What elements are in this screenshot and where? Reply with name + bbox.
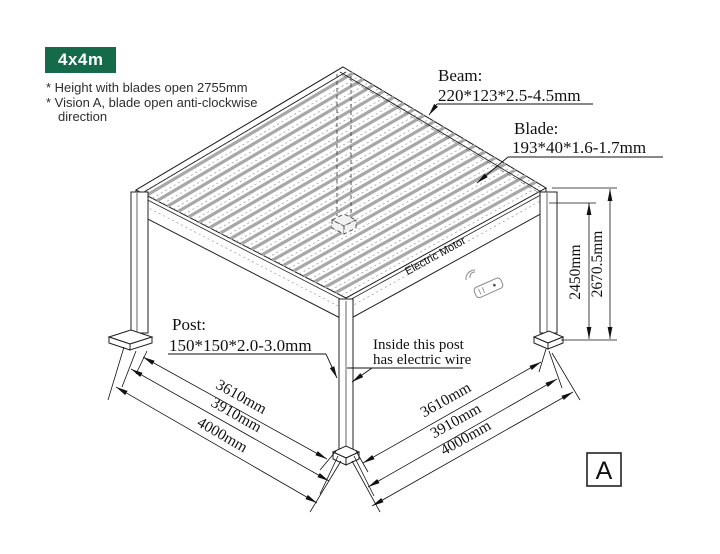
remote-control-icon <box>466 270 504 299</box>
notes: * Height with blades open 2755mm * Visio… <box>46 81 258 125</box>
front-post <box>333 299 359 465</box>
view-label: A <box>596 457 613 485</box>
size-badge: 4x4m <box>45 47 116 73</box>
right-post-base-plate <box>534 331 563 349</box>
beam-callout-title: Beam: <box>438 66 482 85</box>
note-height: * Height with blades open 2755mm <box>46 81 258 96</box>
note-vision: * Vision A, blade open anti-clockwise <box>46 96 258 111</box>
post-callout-spec: 150*150*2.0-3.0mm <box>169 336 312 355</box>
wire-note-line1: Inside this post <box>373 337 465 353</box>
note-vision-wrap: direction <box>58 110 258 125</box>
diagram-page: 3610mm 3910mm 4000mm 3610mm 3910mm 4000m… <box>0 0 720 554</box>
left-post <box>109 192 152 350</box>
post-callout-title: Post: <box>172 315 206 334</box>
beam-callout-spec: 220*123*2.5-4.5mm <box>438 86 581 105</box>
signal-waves-icon <box>466 270 475 280</box>
front-post-base-plate <box>333 446 359 465</box>
dim-label-height-2670: 2670.5mm <box>589 231 606 298</box>
view-label-box: A <box>587 453 621 486</box>
wire-note-line2: has electric wire <box>373 352 472 368</box>
dim-label-height-2450: 2450mm <box>567 244 584 299</box>
blade-callout-spec: 193*40*1.6-1.7mm <box>512 138 646 157</box>
blade-callout-title: Blade: <box>514 119 558 138</box>
